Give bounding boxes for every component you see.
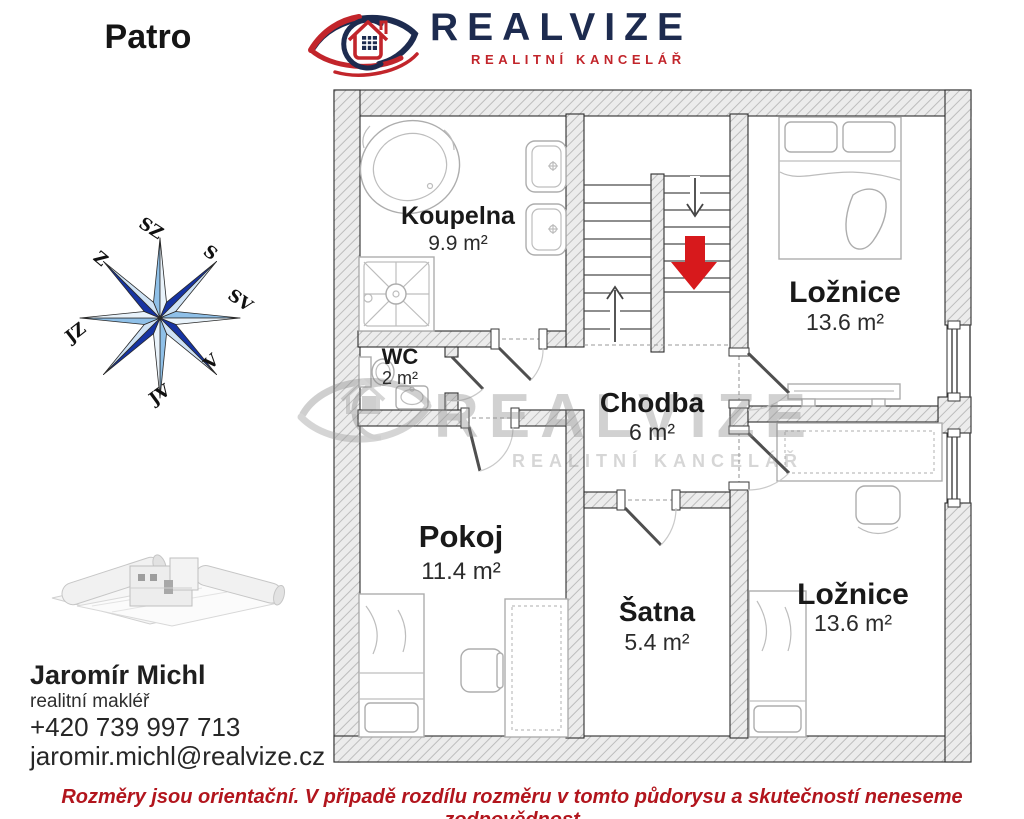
shower-icon bbox=[359, 257, 434, 331]
agent-role: realitní makléř bbox=[30, 691, 149, 713]
compass-label-v: V bbox=[199, 350, 224, 375]
room-label-loznice-bottom: Ložnice bbox=[797, 578, 909, 611]
floor-plan: REALVIZE REALITNÍ KANCELÁŘ Koupelna 9.9 … bbox=[295, 85, 1024, 775]
room-label-loznice-top: Ložnice bbox=[789, 276, 901, 309]
window bbox=[948, 429, 970, 507]
compass-rose-icon: SZ S SV V JV JZ Z bbox=[55, 212, 265, 418]
room-area-loznice-bottom: 13.6 m² bbox=[814, 610, 892, 636]
compass-label-s: S bbox=[199, 241, 221, 264]
agent-phone: +420 739 997 713 bbox=[30, 712, 240, 743]
realvize-eye-icon bbox=[301, 2, 427, 78]
compass-label-sv: SV bbox=[224, 285, 257, 316]
room-label-wc: WC bbox=[382, 344, 419, 369]
compass-label-sz: SZ bbox=[135, 214, 167, 244]
single-bed-icon bbox=[359, 594, 424, 737]
blueprint-house-illustration bbox=[22, 526, 288, 630]
desk-icon bbox=[505, 599, 568, 737]
room-label-koupelna: Koupelna bbox=[401, 202, 516, 230]
room-area-satna: 5.4 m² bbox=[624, 629, 690, 655]
room-label-satna: Šatna bbox=[619, 595, 696, 627]
single-bed-icon bbox=[749, 591, 806, 737]
agent-email: jaromir.michl@realvize.cz bbox=[30, 741, 325, 772]
window bbox=[948, 321, 970, 401]
sink-icon bbox=[526, 204, 566, 255]
page: Patro REALVIZE REALITNÍ KANCELÁŘ bbox=[0, 0, 1024, 819]
room-area-chodba: 6 m² bbox=[629, 419, 675, 445]
brand-tagline: REALITNÍ KANCELÁŘ bbox=[471, 52, 686, 67]
room-area-koupelna: 9.9 m² bbox=[428, 232, 488, 255]
double-bed-icon bbox=[779, 117, 901, 259]
sink-icon bbox=[526, 141, 566, 192]
compass-label-jv: JV bbox=[144, 380, 175, 410]
agent-name: Jaromír Michl bbox=[30, 660, 206, 691]
compass-label-jz: JZ bbox=[60, 319, 90, 349]
brand-name: REALVIZE bbox=[430, 6, 692, 50]
watermark-tagline: REALITNÍ KANCELÁŘ bbox=[512, 450, 803, 471]
disclaimer-text: Rozměry jsou orientační. V připadě rozdí… bbox=[0, 786, 1024, 819]
room-label-chodba: Chodba bbox=[600, 387, 705, 418]
chair-icon bbox=[461, 649, 503, 692]
room-label-pokoj: Pokoj bbox=[419, 519, 503, 554]
room-area-wc: 2 m² bbox=[382, 368, 418, 388]
floor-title: Patro bbox=[58, 18, 238, 57]
room-area-pokoj: 11.4 m² bbox=[421, 558, 501, 585]
room-area-loznice-top: 13.6 m² bbox=[806, 309, 884, 335]
